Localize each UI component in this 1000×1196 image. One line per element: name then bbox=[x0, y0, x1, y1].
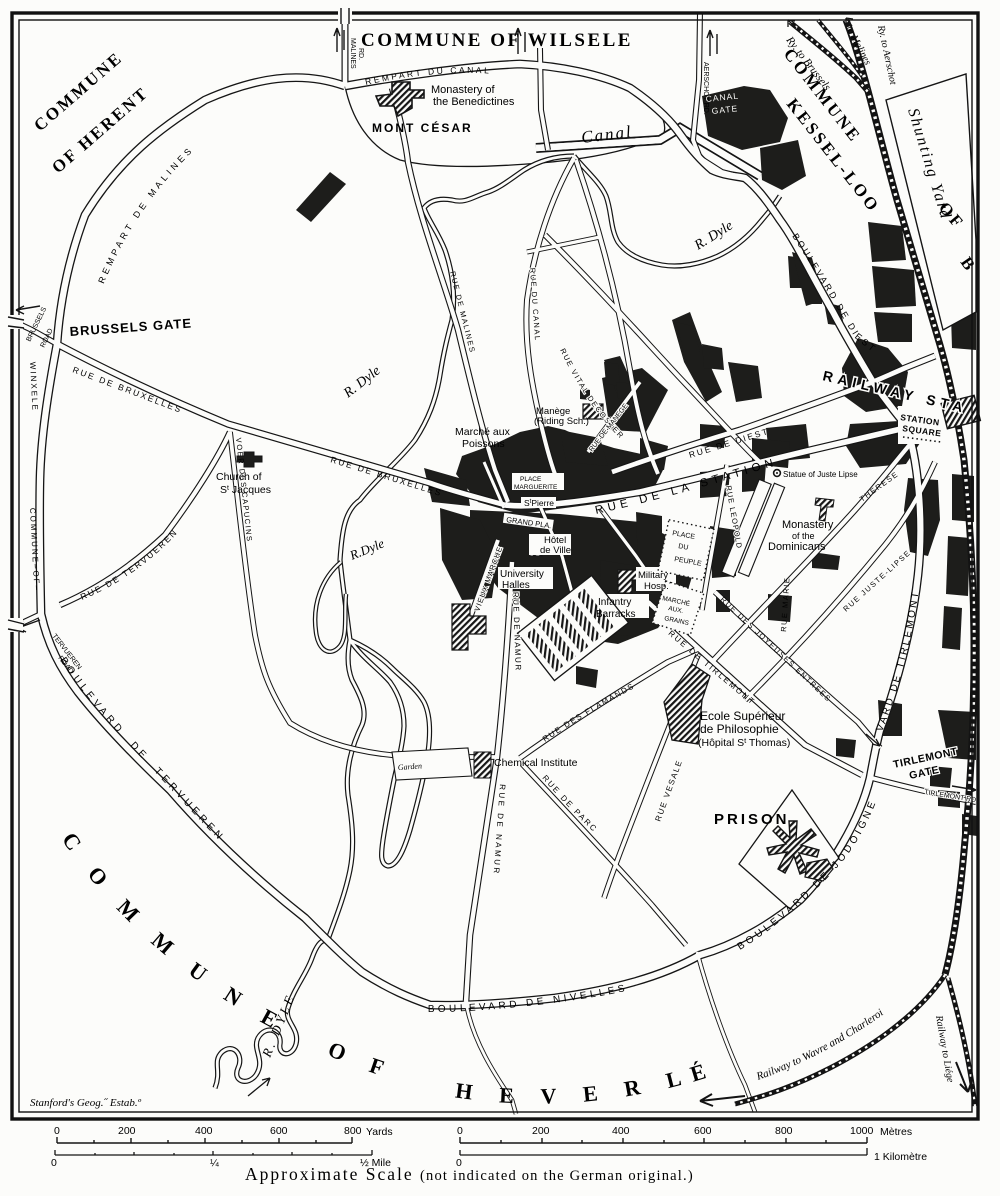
svg-text:of the: of the bbox=[792, 531, 815, 541]
svg-text:Hosp.˝: Hosp.˝ bbox=[644, 581, 673, 592]
svg-text:Infantry: Infantry bbox=[598, 597, 631, 608]
svg-text:RD.: RD. bbox=[357, 48, 364, 60]
svg-text:200: 200 bbox=[118, 1125, 136, 1137]
svg-text:StPierre: StPierre bbox=[524, 498, 554, 508]
svg-text:MONT CÉSAR: MONT CÉSAR bbox=[372, 120, 473, 135]
svg-text:400: 400 bbox=[195, 1125, 213, 1137]
svg-text:¼: ¼ bbox=[210, 1157, 219, 1169]
svg-text:PRISON: PRISON bbox=[714, 811, 790, 828]
svg-text:Barracks: Barracks bbox=[596, 609, 635, 620]
svg-text:1000: 1000 bbox=[850, 1125, 874, 1137]
svg-text:Military: Military bbox=[638, 570, 668, 581]
svg-text:the Benedictines: the Benedictines bbox=[433, 96, 515, 108]
svg-text:Ecole Supérieur: Ecole Supérieur bbox=[700, 709, 785, 723]
svg-text:MARGUERITE: MARGUERITE bbox=[514, 484, 558, 491]
svg-text:0: 0 bbox=[457, 1125, 463, 1137]
svg-text:MALINES: MALINES bbox=[349, 38, 356, 69]
svg-text:0: 0 bbox=[51, 1157, 57, 1169]
svg-text:Garden: Garden bbox=[398, 761, 423, 772]
svg-text:Monastery: Monastery bbox=[782, 519, 834, 531]
svg-text:Mètres: Mètres bbox=[880, 1126, 912, 1138]
svg-text:Dominicans: Dominicans bbox=[768, 541, 826, 553]
svg-text:Yards: Yards bbox=[366, 1126, 393, 1138]
svg-text:600: 600 bbox=[694, 1125, 712, 1137]
svg-text:Marché aux: Marché aux bbox=[455, 426, 511, 438]
svg-text:PLACE: PLACE bbox=[520, 476, 542, 483]
svg-text:600: 600 bbox=[270, 1125, 288, 1137]
svg-text:COMMUNE OF WILSELE: COMMUNE OF WILSELE bbox=[361, 30, 633, 51]
svg-text:800: 800 bbox=[775, 1125, 793, 1137]
svg-text:0: 0 bbox=[54, 1125, 60, 1137]
svg-text:Chemical Institute: Chemical Institute bbox=[494, 757, 578, 769]
svg-text:de Philosophie: de Philosophie bbox=[700, 722, 779, 736]
svg-text:400: 400 bbox=[612, 1125, 630, 1137]
svg-text:1 Kilomètre: 1 Kilomètre bbox=[874, 1151, 927, 1163]
svg-text:AERSCHOT RD.: AERSCHOT RD. bbox=[702, 62, 709, 115]
svg-text:800: 800 bbox=[344, 1125, 362, 1137]
svg-text:de Ville: de Ville bbox=[540, 545, 571, 556]
svg-text:Statue of Juste Lipse: Statue of Juste Lipse bbox=[783, 470, 858, 479]
svg-text:200: 200 bbox=[532, 1125, 550, 1137]
svg-text:Halles: Halles bbox=[502, 580, 530, 591]
svg-text:University: University bbox=[500, 569, 544, 580]
svg-text:Poissons: Poissons bbox=[462, 438, 505, 450]
svg-text:Monastery of: Monastery of bbox=[431, 84, 496, 96]
svg-text:(Riding Sch.): (Riding Sch.) bbox=[534, 416, 589, 427]
svg-text:Stanford's Geog.˝ Estab.º: Stanford's Geog.˝ Estab.º bbox=[30, 1097, 142, 1109]
